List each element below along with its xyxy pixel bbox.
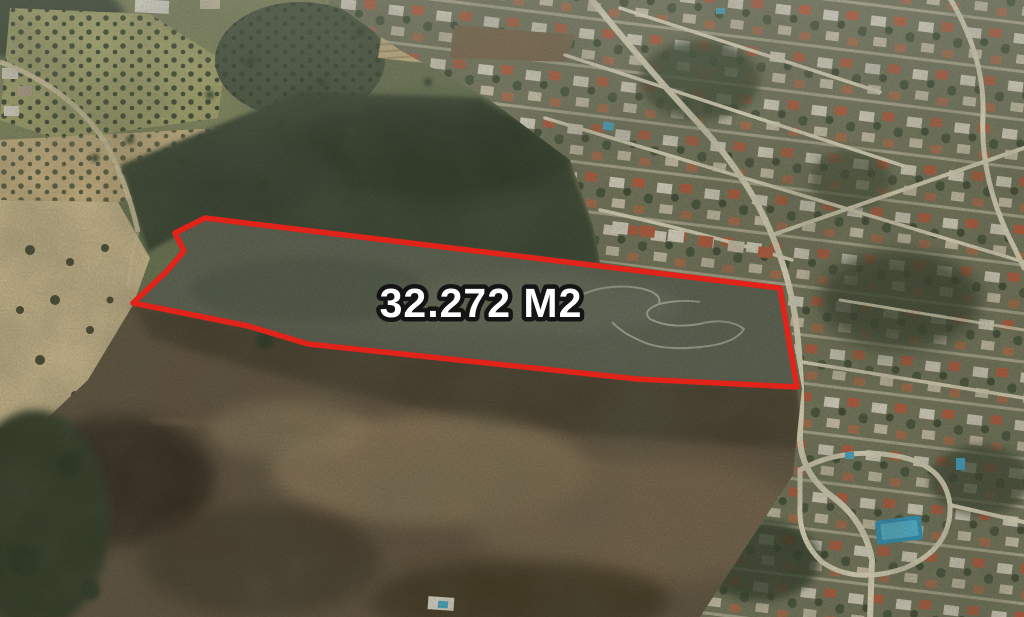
area-label: 32.272 M2: [380, 280, 583, 326]
satellite-map: 32.272 M2: [0, 0, 1024, 617]
aerial-imagery: 32.272 M2: [0, 0, 1024, 617]
